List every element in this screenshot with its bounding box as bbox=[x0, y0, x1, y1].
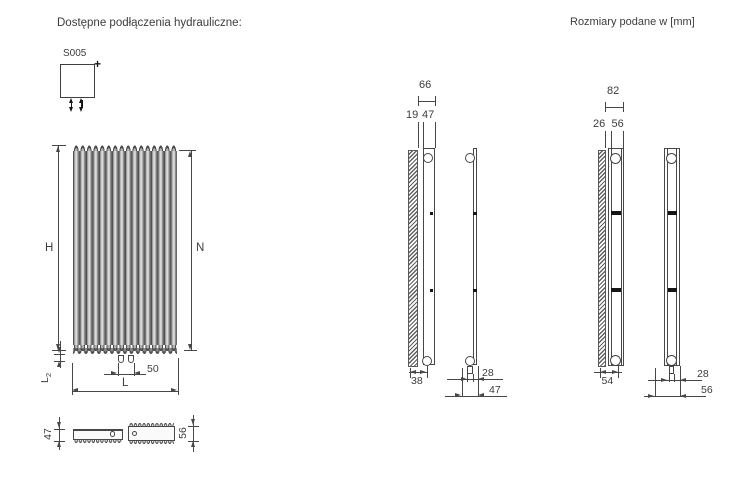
radiator-tube-bottoms-front-row bbox=[73, 345, 177, 352]
dim-line-L bbox=[72, 391, 178, 392]
dim-label-82: 82 bbox=[607, 86, 619, 97]
flow-arrow-up-icon bbox=[69, 98, 73, 103]
extension-line bbox=[423, 122, 424, 148]
header-pipe-bottom bbox=[422, 356, 432, 366]
dim-arrow bbox=[188, 344, 192, 350]
dim-line-82 bbox=[605, 107, 623, 108]
header-pipe-top bbox=[465, 153, 475, 163]
extension-line bbox=[611, 131, 612, 148]
dim-arrow bbox=[680, 394, 686, 398]
dim-arrow bbox=[57, 347, 61, 353]
dim-label-47-depth: 47 bbox=[489, 385, 501, 396]
dim-label-54: 54 bbox=[602, 376, 614, 387]
dim-arrow bbox=[57, 422, 61, 428]
bracket-mark bbox=[668, 211, 677, 215]
extension-line bbox=[655, 368, 656, 397]
section-single-pipe bbox=[110, 431, 116, 437]
header-pipe-top bbox=[666, 153, 677, 164]
section-single-tubes bbox=[74, 440, 122, 444]
dim-serif bbox=[623, 102, 624, 112]
dim-arrow bbox=[461, 377, 467, 381]
dim-label-N: N bbox=[196, 243, 204, 254]
valve-stub bbox=[669, 366, 675, 374]
section-double-tubes-front bbox=[129, 441, 174, 445]
dim-label-28: 28 bbox=[697, 369, 709, 380]
dim-serif bbox=[605, 102, 606, 112]
header-pipe-bottom bbox=[610, 355, 621, 366]
profile-inner-line bbox=[621, 149, 622, 365]
extension-line bbox=[178, 358, 179, 395]
dim-line-H bbox=[58, 146, 59, 350]
header-pipe-bottom bbox=[666, 355, 677, 366]
dim-label-L2: L2 bbox=[40, 370, 54, 386]
dim-serif bbox=[54, 429, 65, 430]
extension-line bbox=[473, 374, 474, 382]
extension-line bbox=[462, 368, 463, 397]
radiator-body bbox=[73, 151, 177, 345]
dim-label-38: 38 bbox=[411, 376, 423, 387]
flow-arrow-up-icon bbox=[79, 98, 83, 103]
units-note: Rozmiary podane w [mm] bbox=[570, 17, 695, 28]
extension-line bbox=[623, 131, 624, 148]
radiator-profile bbox=[423, 148, 435, 365]
extension-line bbox=[467, 374, 468, 382]
header-pipe-bottom bbox=[465, 356, 475, 366]
extension-line bbox=[418, 122, 419, 148]
dim-arrow bbox=[56, 146, 60, 152]
dim-arrow bbox=[57, 441, 61, 447]
radiator-technical-drawing: Dostępne podłączenia hydrauliczne: Rozmi… bbox=[0, 0, 750, 496]
dim-line-28 bbox=[447, 379, 503, 380]
bracket-mark bbox=[611, 211, 621, 215]
header-pipe-top bbox=[423, 153, 433, 163]
profile-inner-line bbox=[611, 149, 612, 365]
dim-label-28: 28 bbox=[482, 368, 494, 379]
dim-label-56-depth: 56 bbox=[701, 385, 713, 396]
dim-arrow bbox=[72, 388, 78, 392]
dim-label-depth-double: 56 bbox=[178, 425, 190, 441]
flow-arrow-down-icon bbox=[69, 107, 73, 112]
connection-square bbox=[60, 64, 95, 98]
dim-label-depth-single: 47 bbox=[43, 426, 55, 442]
dim-label-H: H bbox=[45, 243, 53, 254]
dim-line-66 bbox=[418, 101, 436, 102]
dim-serif bbox=[435, 96, 436, 106]
extension-line bbox=[605, 131, 606, 148]
header-pipe-top bbox=[610, 153, 621, 164]
bracket-mark bbox=[473, 289, 477, 293]
dim-arrow bbox=[648, 394, 654, 398]
dim-arrow bbox=[680, 378, 686, 382]
radiator-profile-standalone bbox=[473, 148, 478, 365]
dim-arrow bbox=[188, 151, 192, 157]
bracket-mark bbox=[473, 212, 477, 216]
dim-arrow bbox=[57, 361, 61, 367]
dim-arrow bbox=[111, 371, 117, 375]
dim-label-19: 19 bbox=[406, 110, 418, 121]
dim-label-56: 56 bbox=[612, 119, 624, 130]
bracket-mark bbox=[430, 289, 434, 293]
dim-arrow bbox=[600, 370, 606, 374]
section-single-row bbox=[73, 429, 123, 440]
dim-serif bbox=[418, 96, 419, 106]
dim-label-L: L bbox=[122, 378, 128, 389]
dim-arrow bbox=[410, 370, 416, 374]
dim-label-50: 50 bbox=[147, 364, 159, 375]
dim-arrow bbox=[612, 370, 618, 374]
dim-arrow bbox=[171, 388, 177, 392]
bracket-mark bbox=[430, 212, 434, 216]
dim-arrow bbox=[191, 419, 195, 425]
dim-arrow bbox=[134, 371, 140, 375]
connection-code-label: S005 bbox=[63, 48, 86, 59]
profile-inner-line bbox=[676, 149, 677, 365]
dim-line-N bbox=[191, 150, 192, 350]
dim-arrow bbox=[420, 370, 426, 374]
dim-line-28 bbox=[648, 380, 702, 381]
plus-mark: + bbox=[94, 59, 101, 70]
valve-stub bbox=[467, 366, 473, 374]
wall-section bbox=[598, 150, 606, 367]
dim-label-66: 66 bbox=[419, 80, 431, 91]
wall-section bbox=[408, 150, 418, 367]
dim-arrow bbox=[191, 441, 195, 447]
page-title: Dostępne podłączenia hydrauliczne: bbox=[57, 18, 242, 29]
profile-inner-line bbox=[667, 149, 668, 365]
dim-label-26: 26 bbox=[593, 119, 605, 130]
connection-stub bbox=[118, 355, 124, 363]
bracket-mark bbox=[611, 288, 621, 292]
flow-arrow-down-icon bbox=[79, 107, 83, 112]
extension-line bbox=[435, 122, 436, 148]
dim-arrow bbox=[455, 393, 461, 397]
dim-label-L2-main: L bbox=[39, 377, 51, 383]
bracket-mark bbox=[668, 288, 677, 292]
dim-serif bbox=[54, 354, 65, 355]
dim-label-47: 47 bbox=[422, 110, 434, 121]
dim-serif bbox=[184, 350, 197, 351]
dim-arrow bbox=[661, 378, 667, 382]
section-double-tubes-back bbox=[129, 422, 174, 426]
dim-arrow bbox=[478, 393, 484, 397]
dim-label-L2-sub: 2 bbox=[44, 373, 53, 377]
connection-stub bbox=[128, 355, 134, 363]
